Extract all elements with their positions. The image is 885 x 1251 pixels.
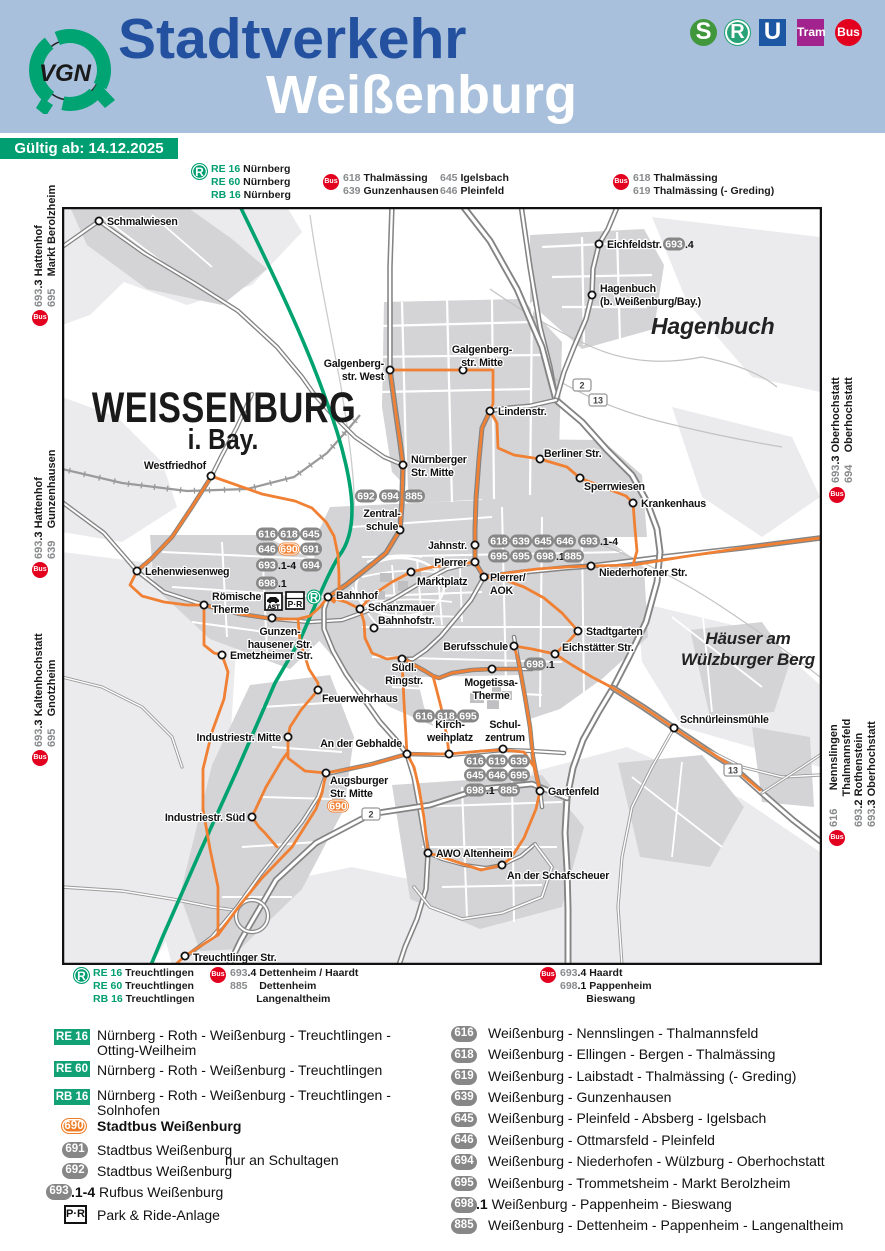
svg-text:R: R [310,593,319,605]
svg-text:Emetzheimer Str.: Emetzheimer Str. [230,650,313,662]
svg-text:P·R: P·R [288,599,303,609]
svg-text:Gunzen-: Gunzen- [260,626,302,638]
svg-text:Lehenwiesenweg: Lehenwiesenweg [145,566,229,578]
svg-text:Schmalwiesen: Schmalwiesen [107,216,178,228]
svg-text:schule: schule [366,521,399,533]
svg-text:Industriestr. Süd: Industriestr. Süd [165,812,245,824]
svg-text:i. Bay.: i. Bay. [188,423,259,455]
svg-text:885: 885 [405,491,423,503]
svg-text:Mogetissa-: Mogetissa- [464,677,518,689]
svg-text:Berufsschule: Berufsschule [443,641,508,653]
svg-text:885: 885 [564,551,582,563]
svg-text:639: 639 [510,756,528,768]
svg-text:Galgenberg-: Galgenberg- [452,344,513,356]
svg-text:Str. Mitte: Str. Mitte [411,467,454,479]
svg-text:618: 618 [280,529,298,541]
svg-text:Kirch-: Kirch- [435,719,465,731]
svg-text:690: 690 [280,544,298,556]
svg-text:13: 13 [728,766,738,776]
svg-text:693: 693 [665,239,683,251]
svg-text:616: 616 [258,529,276,541]
svg-text:698: 698 [466,785,484,797]
svg-text:693: 693 [258,560,276,572]
svg-text:695: 695 [512,551,530,563]
svg-text:695: 695 [490,551,508,563]
svg-text:Schul-: Schul- [489,719,521,731]
svg-text:An der Gebhalde: An der Gebhalde [320,738,402,750]
svg-text:Nürnberger: Nürnberger [411,454,467,466]
svg-text:645: 645 [466,770,484,782]
svg-text:Marktplatz: Marktplatz [417,576,467,588]
svg-text:AOK: AOK [490,585,513,597]
svg-text:616: 616 [466,756,484,768]
svg-text:692: 692 [357,491,375,503]
svg-text:Krankenhaus: Krankenhaus [641,498,706,510]
svg-text:Eichstätter Str.: Eichstätter Str. [562,642,634,654]
svg-text:694: 694 [302,560,320,572]
svg-text:646: 646 [488,770,506,782]
svg-text:693: 693 [580,536,598,548]
svg-text:Zentral-: Zentral- [363,508,401,520]
svg-text:698: 698 [526,659,544,671]
svg-text:2: 2 [368,810,373,820]
svg-text:Stadtgarten: Stadtgarten [586,626,643,638]
svg-text:Str. Mitte: Str. Mitte [330,788,373,800]
svg-text:618: 618 [490,536,508,548]
svg-text:698: 698 [536,551,554,563]
svg-text:.1: .1 [546,659,555,671]
svg-text:646: 646 [258,544,276,556]
svg-text:(b. Weißenburg/Bay.): (b. Weißenburg/Bay.) [600,296,701,308]
svg-text:Therme: Therme [212,604,249,616]
svg-text:Berliner Str.: Berliner Str. [544,448,602,460]
svg-text:Feuerwehrhaus: Feuerwehrhaus [322,693,398,705]
svg-text:Südl.: Südl. [392,662,417,674]
svg-text:Plerrer/: Plerrer/ [490,572,526,584]
svg-text:Hagenbuch: Hagenbuch [651,313,775,339]
svg-text:Lindenstr.: Lindenstr. [498,406,547,418]
svg-text:Westfriedhof: Westfriedhof [144,460,207,472]
svg-text:691: 691 [302,544,320,556]
svg-text:Galgenberg-: Galgenberg- [324,358,385,370]
svg-text:AWO Altenheim: AWO Altenheim [436,848,512,860]
svg-text:Therme: Therme [472,690,509,702]
svg-text:13: 13 [593,396,603,406]
svg-text:Sperrwiesen: Sperrwiesen [584,481,645,493]
svg-text:Niederhofener Str.: Niederhofener Str. [599,567,687,579]
svg-text:Wülzburger Berg: Wülzburger Berg [681,650,816,669]
svg-text:Schnürleinsmühle: Schnürleinsmühle [680,714,769,726]
svg-text:645: 645 [302,529,320,541]
svg-text:Bahnhof: Bahnhof [336,590,378,602]
svg-text:Treuchtlinger Str.: Treuchtlinger Str. [193,952,277,964]
svg-text:weihplatz: weihplatz [426,732,473,744]
svg-text:VGN: VGN [39,60,92,87]
svg-text:An der Schafscheuer: An der Schafscheuer [507,870,609,882]
svg-text:2: 2 [579,381,584,391]
svg-text:695: 695 [510,770,528,782]
svg-text:.1: .1 [278,578,287,590]
svg-text:AST: AST [267,604,280,611]
svg-text:Schanzmauer: Schanzmauer [368,602,435,614]
svg-text:Römische: Römische [212,591,261,603]
svg-text:885: 885 [500,785,518,797]
svg-text:Eichfeldstr.: Eichfeldstr. [607,239,662,251]
svg-text:Ringstr.: Ringstr. [385,675,423,687]
svg-text:616: 616 [415,711,433,723]
svg-text:Häuser am: Häuser am [705,629,790,648]
svg-text:Plerrer: Plerrer [434,557,467,569]
svg-text:Bahnhofstr.: Bahnhofstr. [378,615,435,627]
svg-text:690: 690 [329,801,347,813]
svg-text:.4: .4 [685,239,694,251]
svg-text:645: 645 [534,536,552,548]
svg-text:Augsburger: Augsburger [330,775,388,787]
svg-text:.1-4: .1-4 [600,536,618,548]
svg-text:Jahnstr.: Jahnstr. [428,540,467,552]
svg-text:Gartenfeld: Gartenfeld [548,786,599,798]
svg-text:619: 619 [488,756,506,768]
svg-text:Hagenbuch: Hagenbuch [600,283,656,295]
svg-text:Industriestr. Mitte: Industriestr. Mitte [197,732,282,744]
svg-text:639: 639 [512,536,530,548]
svg-text:zentrum: zentrum [485,732,525,744]
svg-text:694: 694 [381,491,399,503]
svg-text:str. Mitte: str. Mitte [461,357,503,369]
svg-text:.1: .1 [486,785,495,797]
svg-text:str. West: str. West [342,371,385,383]
svg-text:698: 698 [258,578,276,590]
svg-text:.1-4: .1-4 [278,560,296,572]
svg-text:646: 646 [556,536,574,548]
